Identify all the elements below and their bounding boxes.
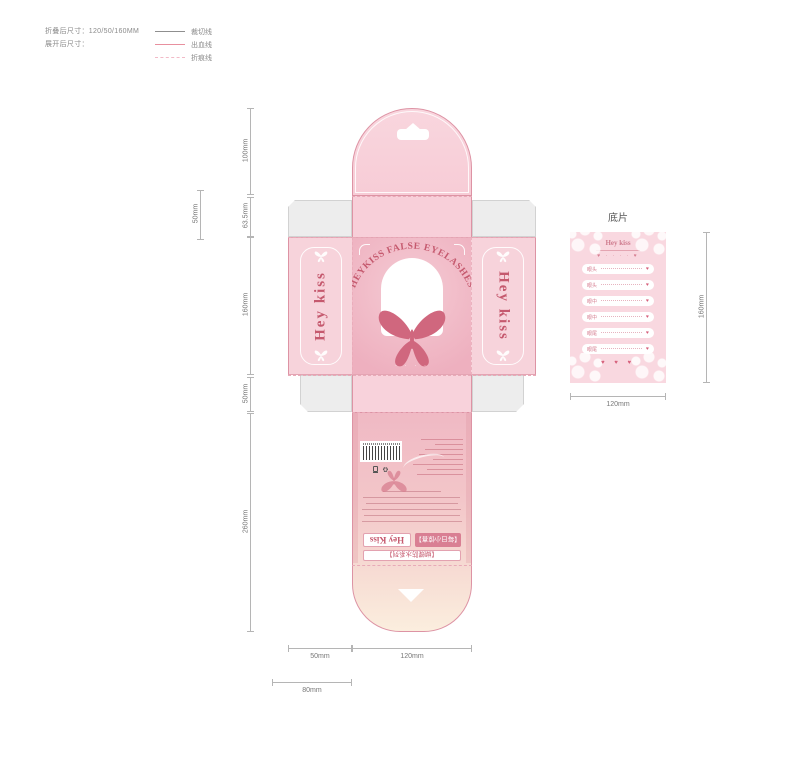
lash-slot-row: 眼中 ♥	[582, 296, 654, 306]
series-badge: 【蝴蝶防水系列】	[363, 550, 461, 561]
base-card: Hey kiss ♥ · · · · ♥ 眼头 ♥ 眼头 ♥ 眼中 ♥ 眼中 ♥…	[570, 232, 666, 383]
fold-line	[352, 412, 472, 413]
cut-line-swatch	[155, 31, 185, 32]
front-panel: HEYKISS FALSE EYELASHES · · · ·	[352, 237, 472, 375]
fold-line	[288, 375, 536, 376]
lash-slot-row: 眼头 ♥	[582, 264, 654, 274]
heart-icon: ♥	[646, 330, 649, 336]
butterfly-ornament-icon	[495, 250, 511, 263]
dim-side-width: 50mm	[288, 648, 352, 649]
dieline-design-canvas: 折叠后尺寸：120/50/160MM 展开后尺寸： 裁切线 出血线 折痕线 10…	[0, 0, 800, 763]
butterfly-ornament-icon	[313, 250, 329, 263]
dim-tab-width: 80mm	[272, 682, 352, 683]
butterfly-ornament-icon	[313, 349, 329, 362]
dust-flap-top-left	[288, 200, 352, 237]
dust-flap-bottom-left	[300, 375, 352, 412]
bleed-line-swatch	[155, 44, 185, 45]
dim-hang-tab-height: 100mm	[250, 108, 251, 195]
dim-card-width: 120mm	[570, 396, 666, 397]
brand-logo-box: Hey Kiss	[363, 533, 411, 547]
dim-side-flap-height: 50mm	[200, 190, 201, 240]
svg-text:HEYKISS FALSE EYELASHES: HEYKISS FALSE EYELASHES	[352, 242, 472, 290]
dim-center-width: 120mm	[352, 648, 472, 649]
cut-line-label: 裁切线	[191, 27, 212, 37]
hearts-row: ♥ · · · · ♥	[570, 253, 666, 259]
euro-hole-cutout	[397, 129, 429, 140]
card-brand: Hey kiss	[570, 239, 666, 247]
badge-row: 【每日小惊喜】 Hey Kiss	[363, 533, 461, 547]
lash-slot-row: 眼尾 ♥	[582, 328, 654, 338]
dim-front-height: 160mm	[250, 237, 251, 375]
dim-back-height: 260mm	[250, 413, 251, 632]
fold-line	[352, 565, 472, 566]
barcode	[360, 441, 402, 462]
heart-icon: ♥	[646, 266, 649, 272]
brand-right: Hey kiss	[495, 271, 512, 341]
side-panel-right: Hey kiss	[471, 237, 536, 375]
lash-slot-row: 眼尾 ♥	[582, 344, 654, 354]
lace-ornament	[570, 353, 608, 383]
bottom-closure-strip	[352, 375, 472, 412]
dust-flap-top-right	[472, 200, 536, 237]
hearts-row: ♥ ♥ ♥	[570, 360, 666, 366]
dim-card-height: 160mm	[706, 232, 707, 383]
dim-bottom-strip-height: 50mm	[250, 377, 251, 412]
dot-ornament: · · · ·	[352, 363, 472, 369]
lash-slot-row: 眼头 ♥	[582, 280, 654, 290]
hang-tab-panel	[352, 108, 472, 196]
side-panel-left: Hey kiss	[288, 237, 353, 375]
daily-surprise-badge: 【每日小惊喜】	[415, 533, 461, 547]
tidyman-bin-icon	[373, 466, 378, 472]
crease-line-label: 折痕线	[191, 53, 212, 63]
lash-slot-row: 眼中 ♥	[582, 312, 654, 322]
thumb-notch-cutout	[398, 589, 424, 602]
heart-icon: ♥	[646, 346, 649, 352]
unfolded-size-label: 展开后尺寸：	[45, 39, 89, 49]
fold-line	[471, 237, 472, 375]
fold-line	[352, 196, 472, 197]
arched-title: HEYKISS FALSE EYELASHES	[352, 238, 472, 376]
fold-line	[288, 237, 536, 238]
dim-top-flap-height: 63.5mm	[250, 197, 251, 237]
dust-flap-bottom-right	[472, 375, 524, 412]
crease-line-swatch	[155, 57, 185, 58]
bleed-line-label: 出血线	[191, 40, 212, 50]
brand-left: Hey kiss	[313, 271, 330, 341]
heart-icon: ♥	[646, 314, 649, 320]
back-paragraph-text	[362, 491, 462, 527]
top-closure-panel	[352, 196, 472, 237]
base-card-title: 底片	[570, 209, 666, 224]
folded-size-label: 折叠后尺寸：120/50/160MM	[45, 26, 139, 36]
butterfly-ornament-icon	[379, 469, 409, 495]
lace-ornament	[628, 353, 666, 383]
fold-line	[352, 237, 353, 375]
butterfly-ornament-icon	[495, 349, 511, 362]
heart-icon: ♥	[646, 298, 649, 304]
heart-icon: ♥	[646, 282, 649, 288]
